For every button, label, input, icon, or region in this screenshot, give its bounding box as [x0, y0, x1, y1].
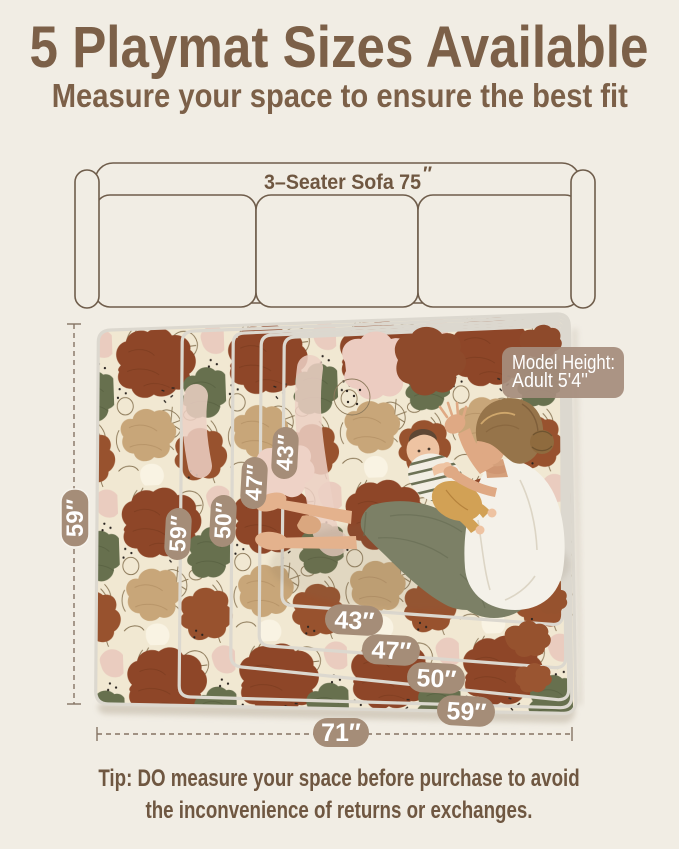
svg-text:59″: 59″: [62, 498, 89, 537]
svg-text:43″: 43″: [271, 434, 299, 472]
svg-text:″: ″: [423, 164, 432, 185]
svg-text:59″: 59″: [164, 515, 192, 553]
svg-text:50″: 50″: [209, 502, 237, 540]
svg-text:50″: 50″: [416, 664, 457, 694]
svg-text:59″: 59″: [446, 697, 487, 727]
svg-text:43″: 43″: [334, 606, 375, 636]
svg-text:3–Seater Sofa 75: 3–Seater Sofa 75: [264, 171, 421, 194]
svg-text:47″: 47″: [371, 636, 412, 666]
svg-text:Adult 5'4'': Adult 5'4'': [512, 370, 588, 392]
svg-text:47″: 47″: [240, 464, 268, 502]
svg-text:71″: 71″: [321, 719, 361, 747]
